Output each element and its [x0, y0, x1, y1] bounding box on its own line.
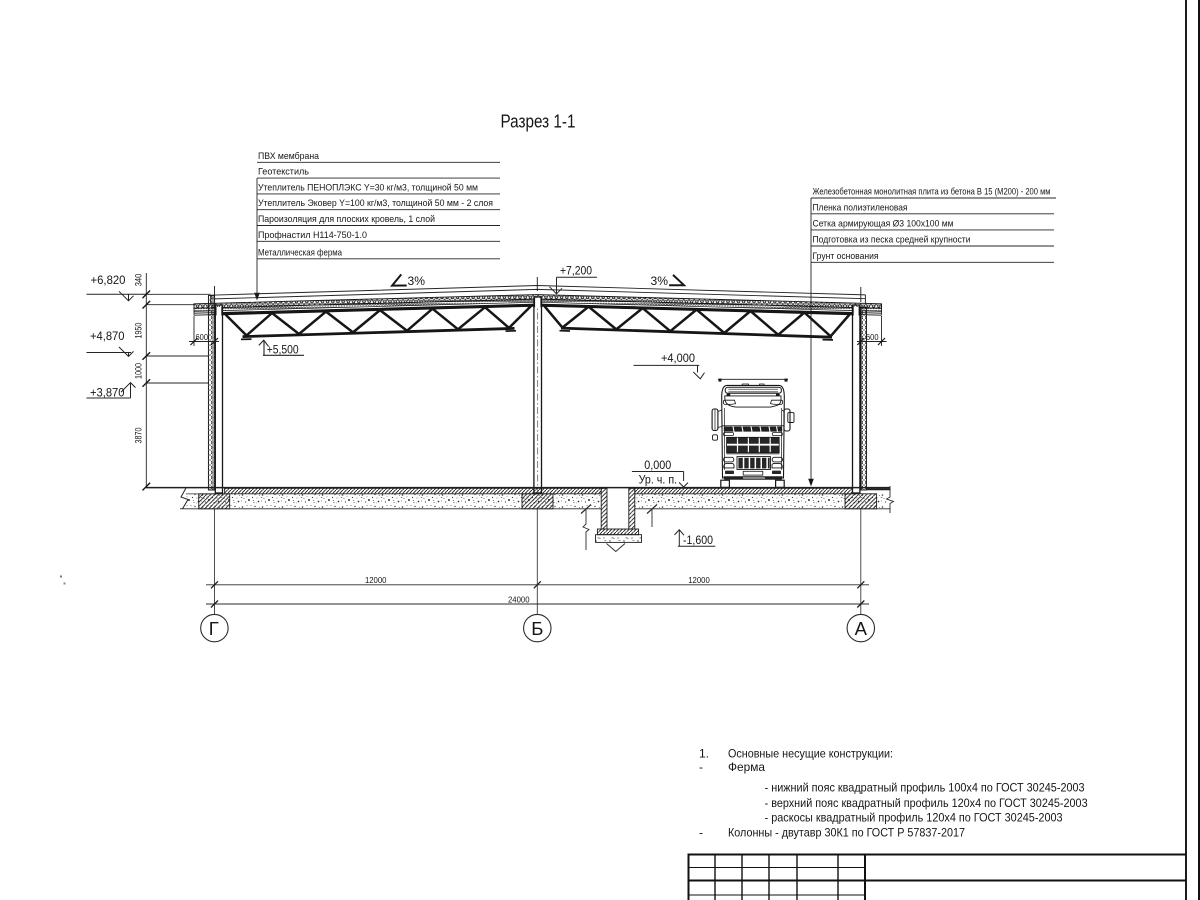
svg-text:Грунт основания: Грунт основания [813, 250, 879, 261]
svg-text:Основные несущие конструкции:: Основные несущие конструкции: [728, 747, 893, 761]
svg-text:Ферма: Ферма [728, 760, 765, 774]
svg-text:Пароизоляция для плоских крове: Пароизоляция для плоских кровель, 1 слой [258, 213, 435, 224]
svg-text:1950: 1950 [134, 323, 145, 339]
svg-text:Пленка полиэтиленовая: Пленка полиэтиленовая [813, 201, 908, 212]
svg-text:+4,000: +4,000 [661, 351, 695, 365]
svg-text:Ур. ч. п.: Ур. ч. п. [639, 473, 678, 487]
svg-text:3%: 3% [651, 276, 669, 288]
svg-text:- раскосы квадратный профиль 1: - раскосы квадратный профиль 120х4 по ГО… [765, 811, 1063, 825]
svg-text:Разрез 1-1: Разрез 1-1 [501, 112, 576, 132]
svg-text:+5,500: +5,500 [267, 342, 299, 356]
svg-text:600: 600 [866, 332, 879, 342]
svg-text:- верхний пояс квадратный проф: - верхний пояс квадратный профиль 120х4 … [765, 796, 1088, 810]
svg-text:Колонны - двутавр 30К1 по ГОСТ: Колонны - двутавр 30К1 по ГОСТ Р 57837-2… [728, 826, 965, 840]
svg-text:А: А [855, 618, 868, 639]
svg-text:12000: 12000 [688, 575, 710, 585]
svg-text:Профнастил Н114-750-1.0: Профнастил Н114-750-1.0 [258, 229, 367, 240]
svg-text:+3,870: +3,870 [90, 385, 125, 399]
svg-text:600: 600 [196, 332, 209, 342]
svg-text:1000: 1000 [134, 363, 145, 379]
svg-text:+6,820: +6,820 [91, 273, 126, 287]
svg-text:+7,200: +7,200 [560, 263, 592, 277]
svg-text:-: - [699, 826, 703, 840]
svg-text:3870: 3870 [134, 428, 145, 444]
svg-text:Подготовка из песка средней кр: Подготовка из песка средней крупности [813, 234, 971, 245]
svg-text:Металлическая ферма: Металлическая ферма [258, 246, 343, 257]
svg-text:0,000: 0,000 [644, 458, 671, 472]
svg-text:-1,600: -1,600 [683, 533, 713, 547]
svg-text:Сетка армирующая Ø3 100х100 мм: Сетка армирующая Ø3 100х100 мм [813, 217, 954, 228]
svg-text:1.: 1. [699, 747, 709, 761]
svg-text:3%: 3% [408, 276, 426, 288]
svg-text:24000: 24000 [508, 595, 530, 605]
svg-text:- нижний пояс квадратный профи: - нижний пояс квадратный профиль 100х4 п… [765, 781, 1085, 795]
svg-text:340: 340 [134, 274, 145, 287]
svg-text:Утеплитель Эковер Y=100 кг/м3,: Утеплитель Эковер Y=100 кг/м3, толщиной … [258, 197, 493, 208]
svg-text:-: - [699, 760, 703, 774]
svg-text:Б: Б [531, 618, 543, 639]
svg-text:+4,870: +4,870 [90, 329, 125, 343]
svg-text:Г: Г [209, 618, 219, 639]
svg-text:Железобетонная монолитная плит: Железобетонная монолитная плита из бетон… [813, 186, 1051, 197]
svg-text:ПВХ мембрана: ПВХ мембрана [258, 150, 320, 161]
svg-text:12000: 12000 [365, 575, 387, 585]
svg-text:Утеплитель ПЕНОПЛЭКС Y=30 кг/м: Утеплитель ПЕНОПЛЭКС Y=30 кг/м3, толщино… [258, 181, 478, 192]
svg-text:Геотекстиль: Геотекстиль [258, 166, 309, 177]
